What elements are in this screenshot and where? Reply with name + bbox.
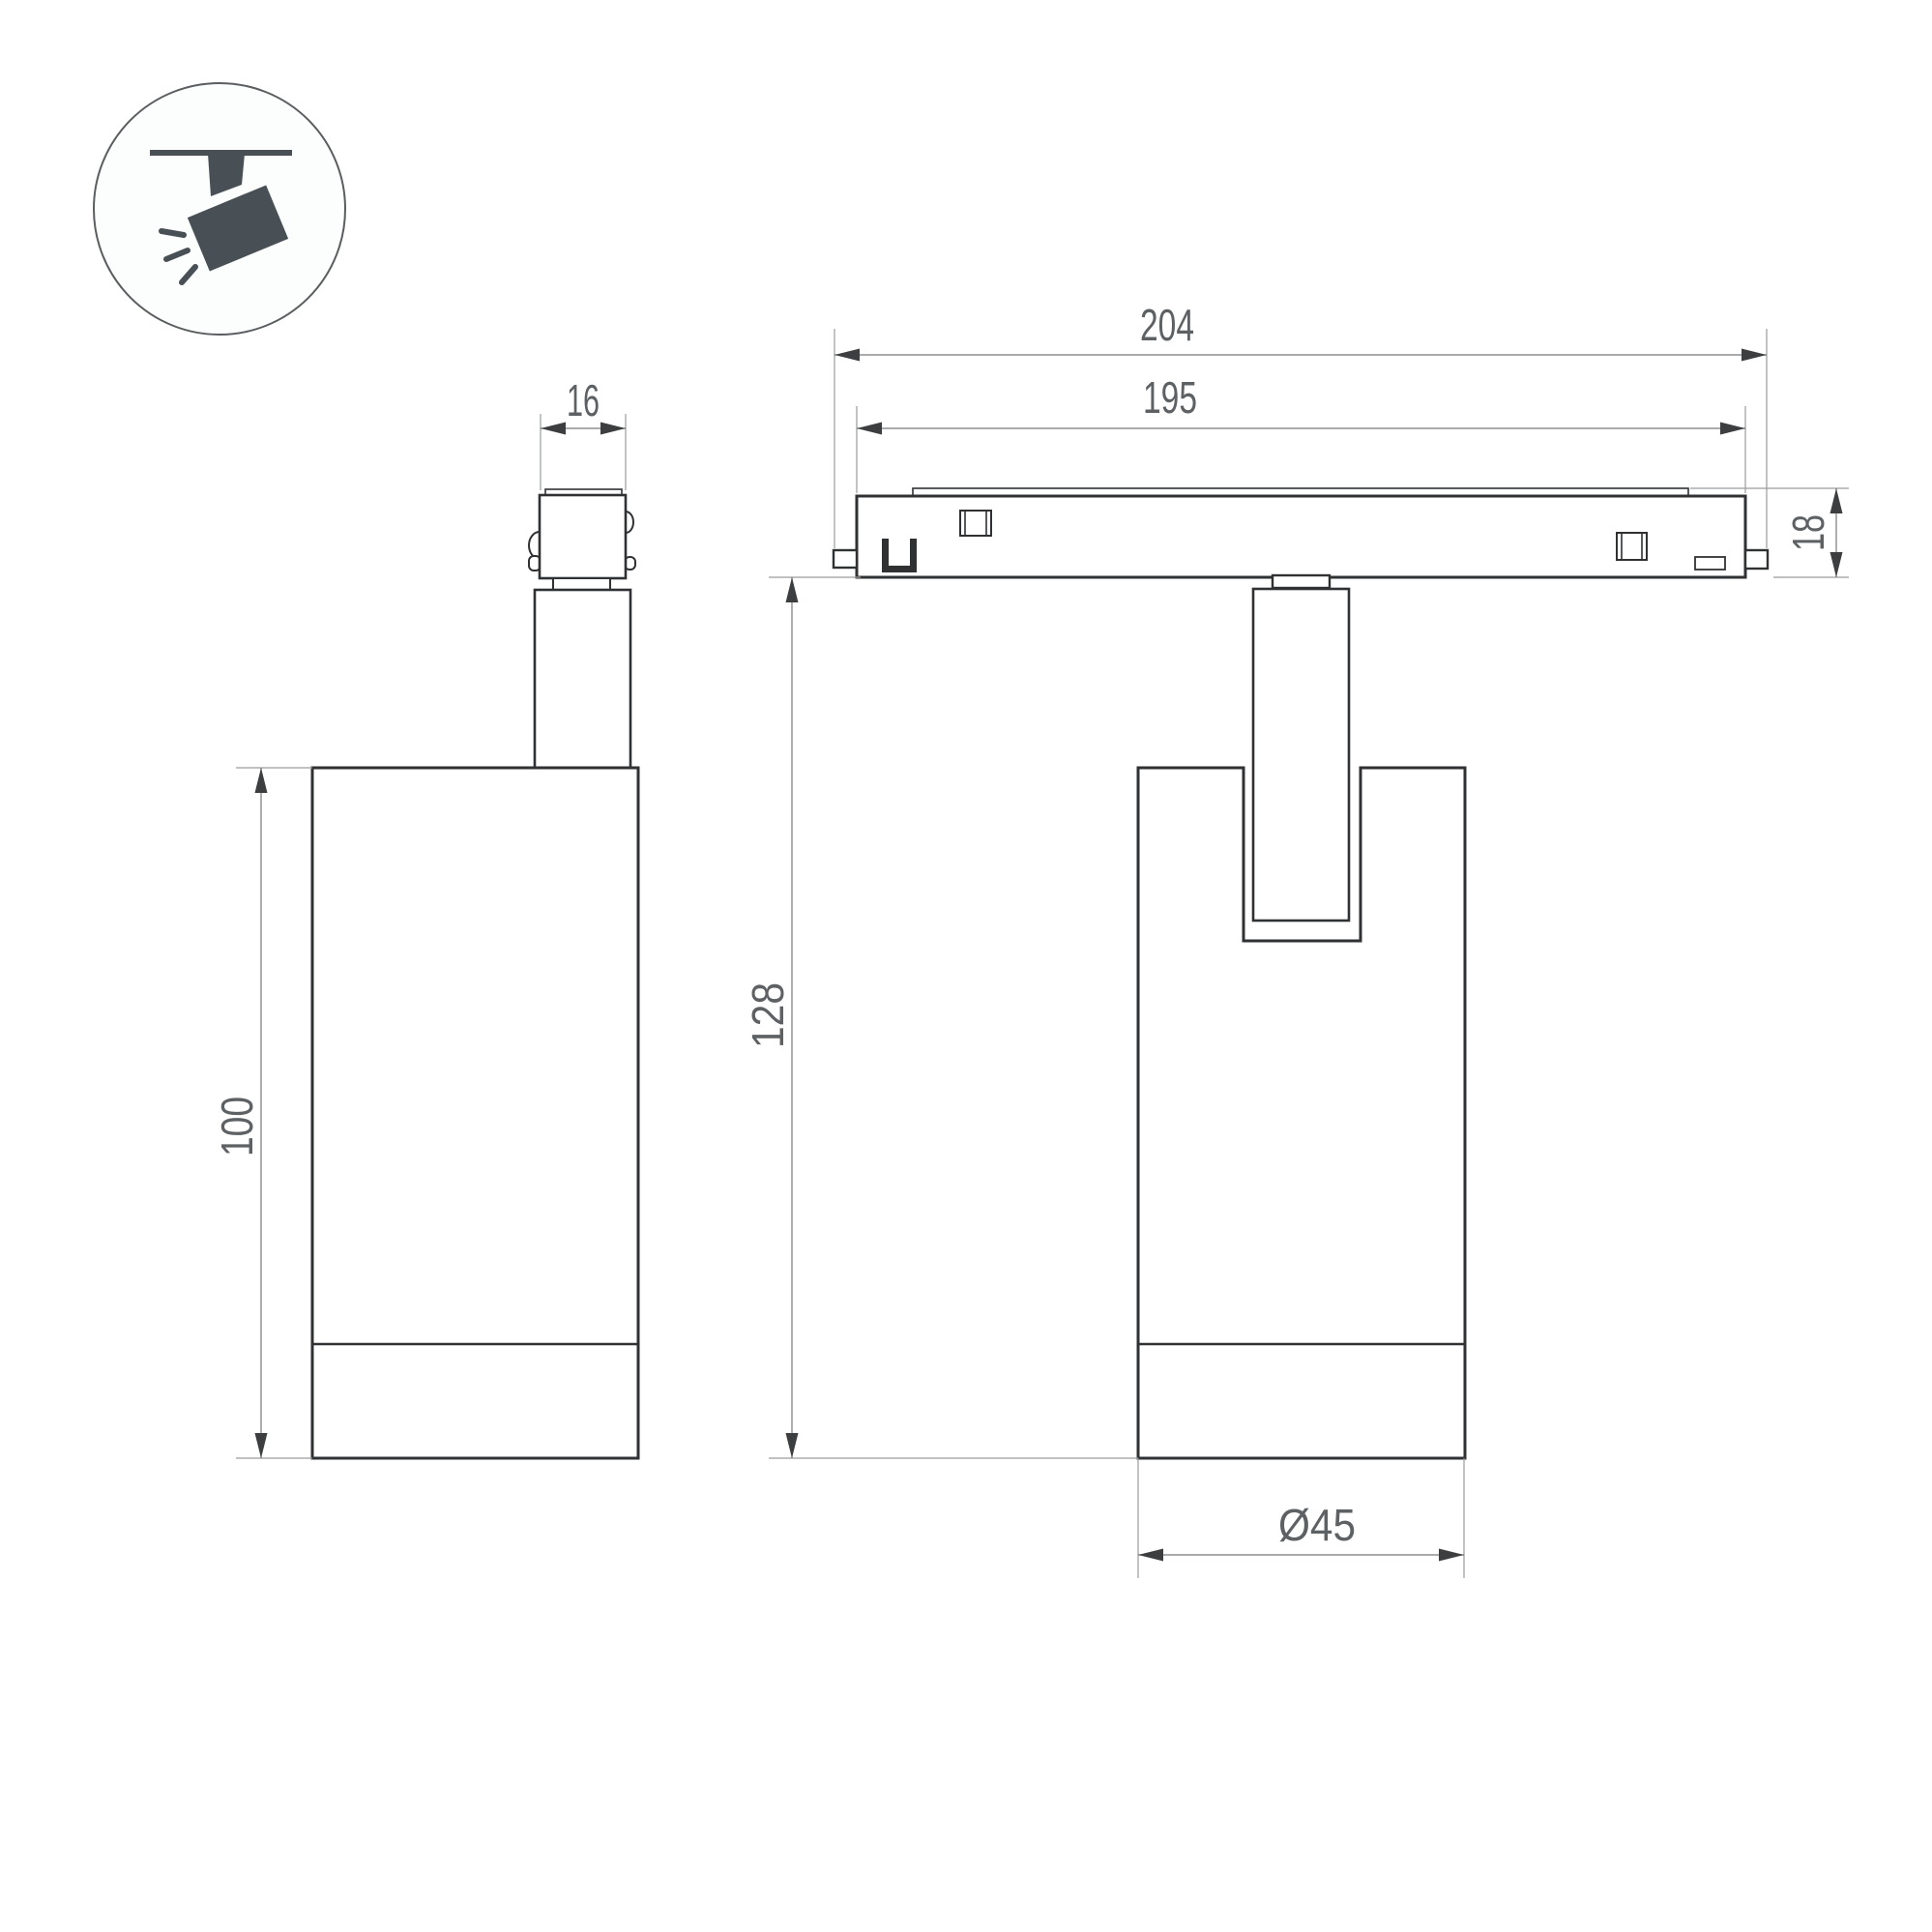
dimension-arrow	[541, 423, 566, 435]
dimension-arrow	[1742, 349, 1767, 362]
dimension-label: Ø45	[1278, 1500, 1356, 1550]
dimension-arrow	[255, 1433, 268, 1458]
dimension-label: 18	[1783, 514, 1833, 551]
dimension-arrow	[1439, 1549, 1464, 1562]
dimension-label: 16	[567, 375, 600, 425]
dimension-label: 204	[1140, 300, 1194, 350]
dim-body-diameter: Ø45	[1138, 1458, 1464, 1578]
adapter-neck-side	[553, 578, 610, 590]
dimension-arrow	[1830, 488, 1843, 513]
stem-side	[535, 590, 630, 768]
dimension-label: 100	[212, 1097, 262, 1156]
dim-adapter-width: 16	[541, 375, 626, 490]
spotlight-icon	[94, 83, 345, 335]
side-view: 16 100	[212, 375, 638, 1458]
dimension-arrow	[1138, 1549, 1163, 1562]
track-detail-slot	[1695, 557, 1725, 570]
track-detail-latch-left	[960, 511, 991, 536]
dimension-arrow	[857, 423, 882, 435]
dimension-arrow	[786, 577, 799, 602]
dim-body-height: 100	[212, 768, 312, 1458]
dimension-arrow	[1830, 552, 1843, 577]
dimension-arrow	[1720, 423, 1745, 435]
dimension-arrow	[786, 1433, 799, 1458]
dimension-arrow	[834, 349, 860, 362]
dim-overall-height: 128	[743, 577, 1138, 1458]
body-side	[312, 768, 638, 1458]
adapter-box-side	[540, 495, 626, 578]
adapter-nub-front	[1273, 575, 1330, 588]
dimension-arrow	[600, 423, 626, 435]
dimension-arrow	[255, 768, 268, 793]
track-detail-latch-right	[1617, 533, 1647, 560]
stem-front	[1253, 589, 1349, 921]
front-view: 204 195	[743, 300, 1849, 1578]
icon-light-ray	[161, 231, 184, 235]
adapter-clip-left	[529, 532, 540, 559]
technical-drawing-page: 16 100 204	[0, 0, 1932, 1932]
dim-track-length-inner: 195	[857, 372, 1745, 493]
track-end-clip-left	[834, 550, 857, 568]
track-end-clip-right	[1745, 550, 1768, 569]
technical-drawing: 16 100 204	[0, 0, 1932, 1932]
dimension-label: 195	[1143, 372, 1197, 423]
dimension-label: 128	[743, 982, 793, 1048]
